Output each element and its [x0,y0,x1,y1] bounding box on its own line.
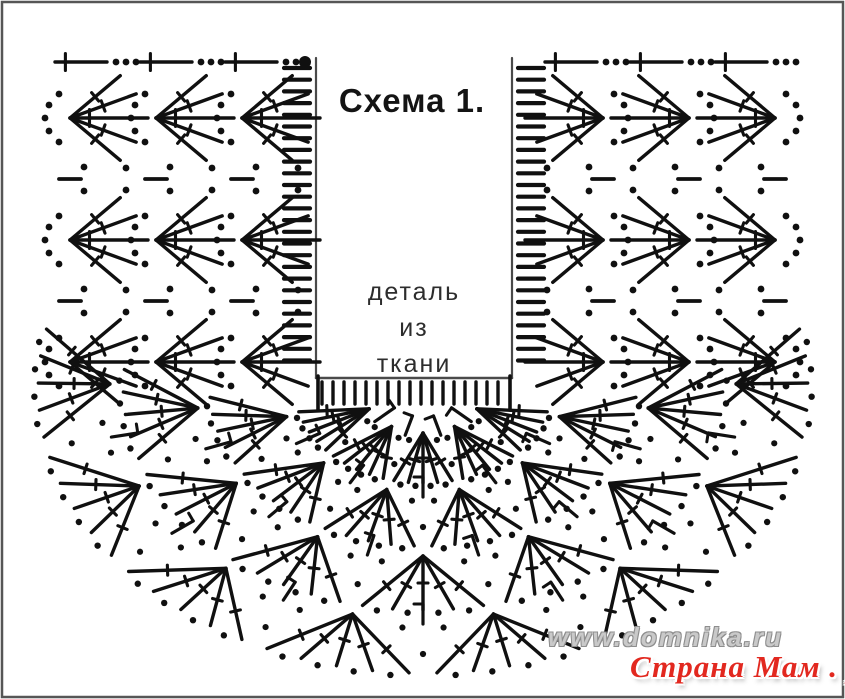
brand-watermark: Страна Мам . ру [630,649,845,685]
fabric-label-line-1: деталь [316,274,512,310]
crochet-chart-page: Схема 1. деталь из ткани www.domnika.ru … [0,0,845,699]
fabric-area-label: деталь из ткани [316,274,512,382]
chart-title: Схема 1. [306,82,518,120]
fabric-label-line-3: ткани [316,346,512,382]
fabric-label-line-2: из [316,310,512,346]
